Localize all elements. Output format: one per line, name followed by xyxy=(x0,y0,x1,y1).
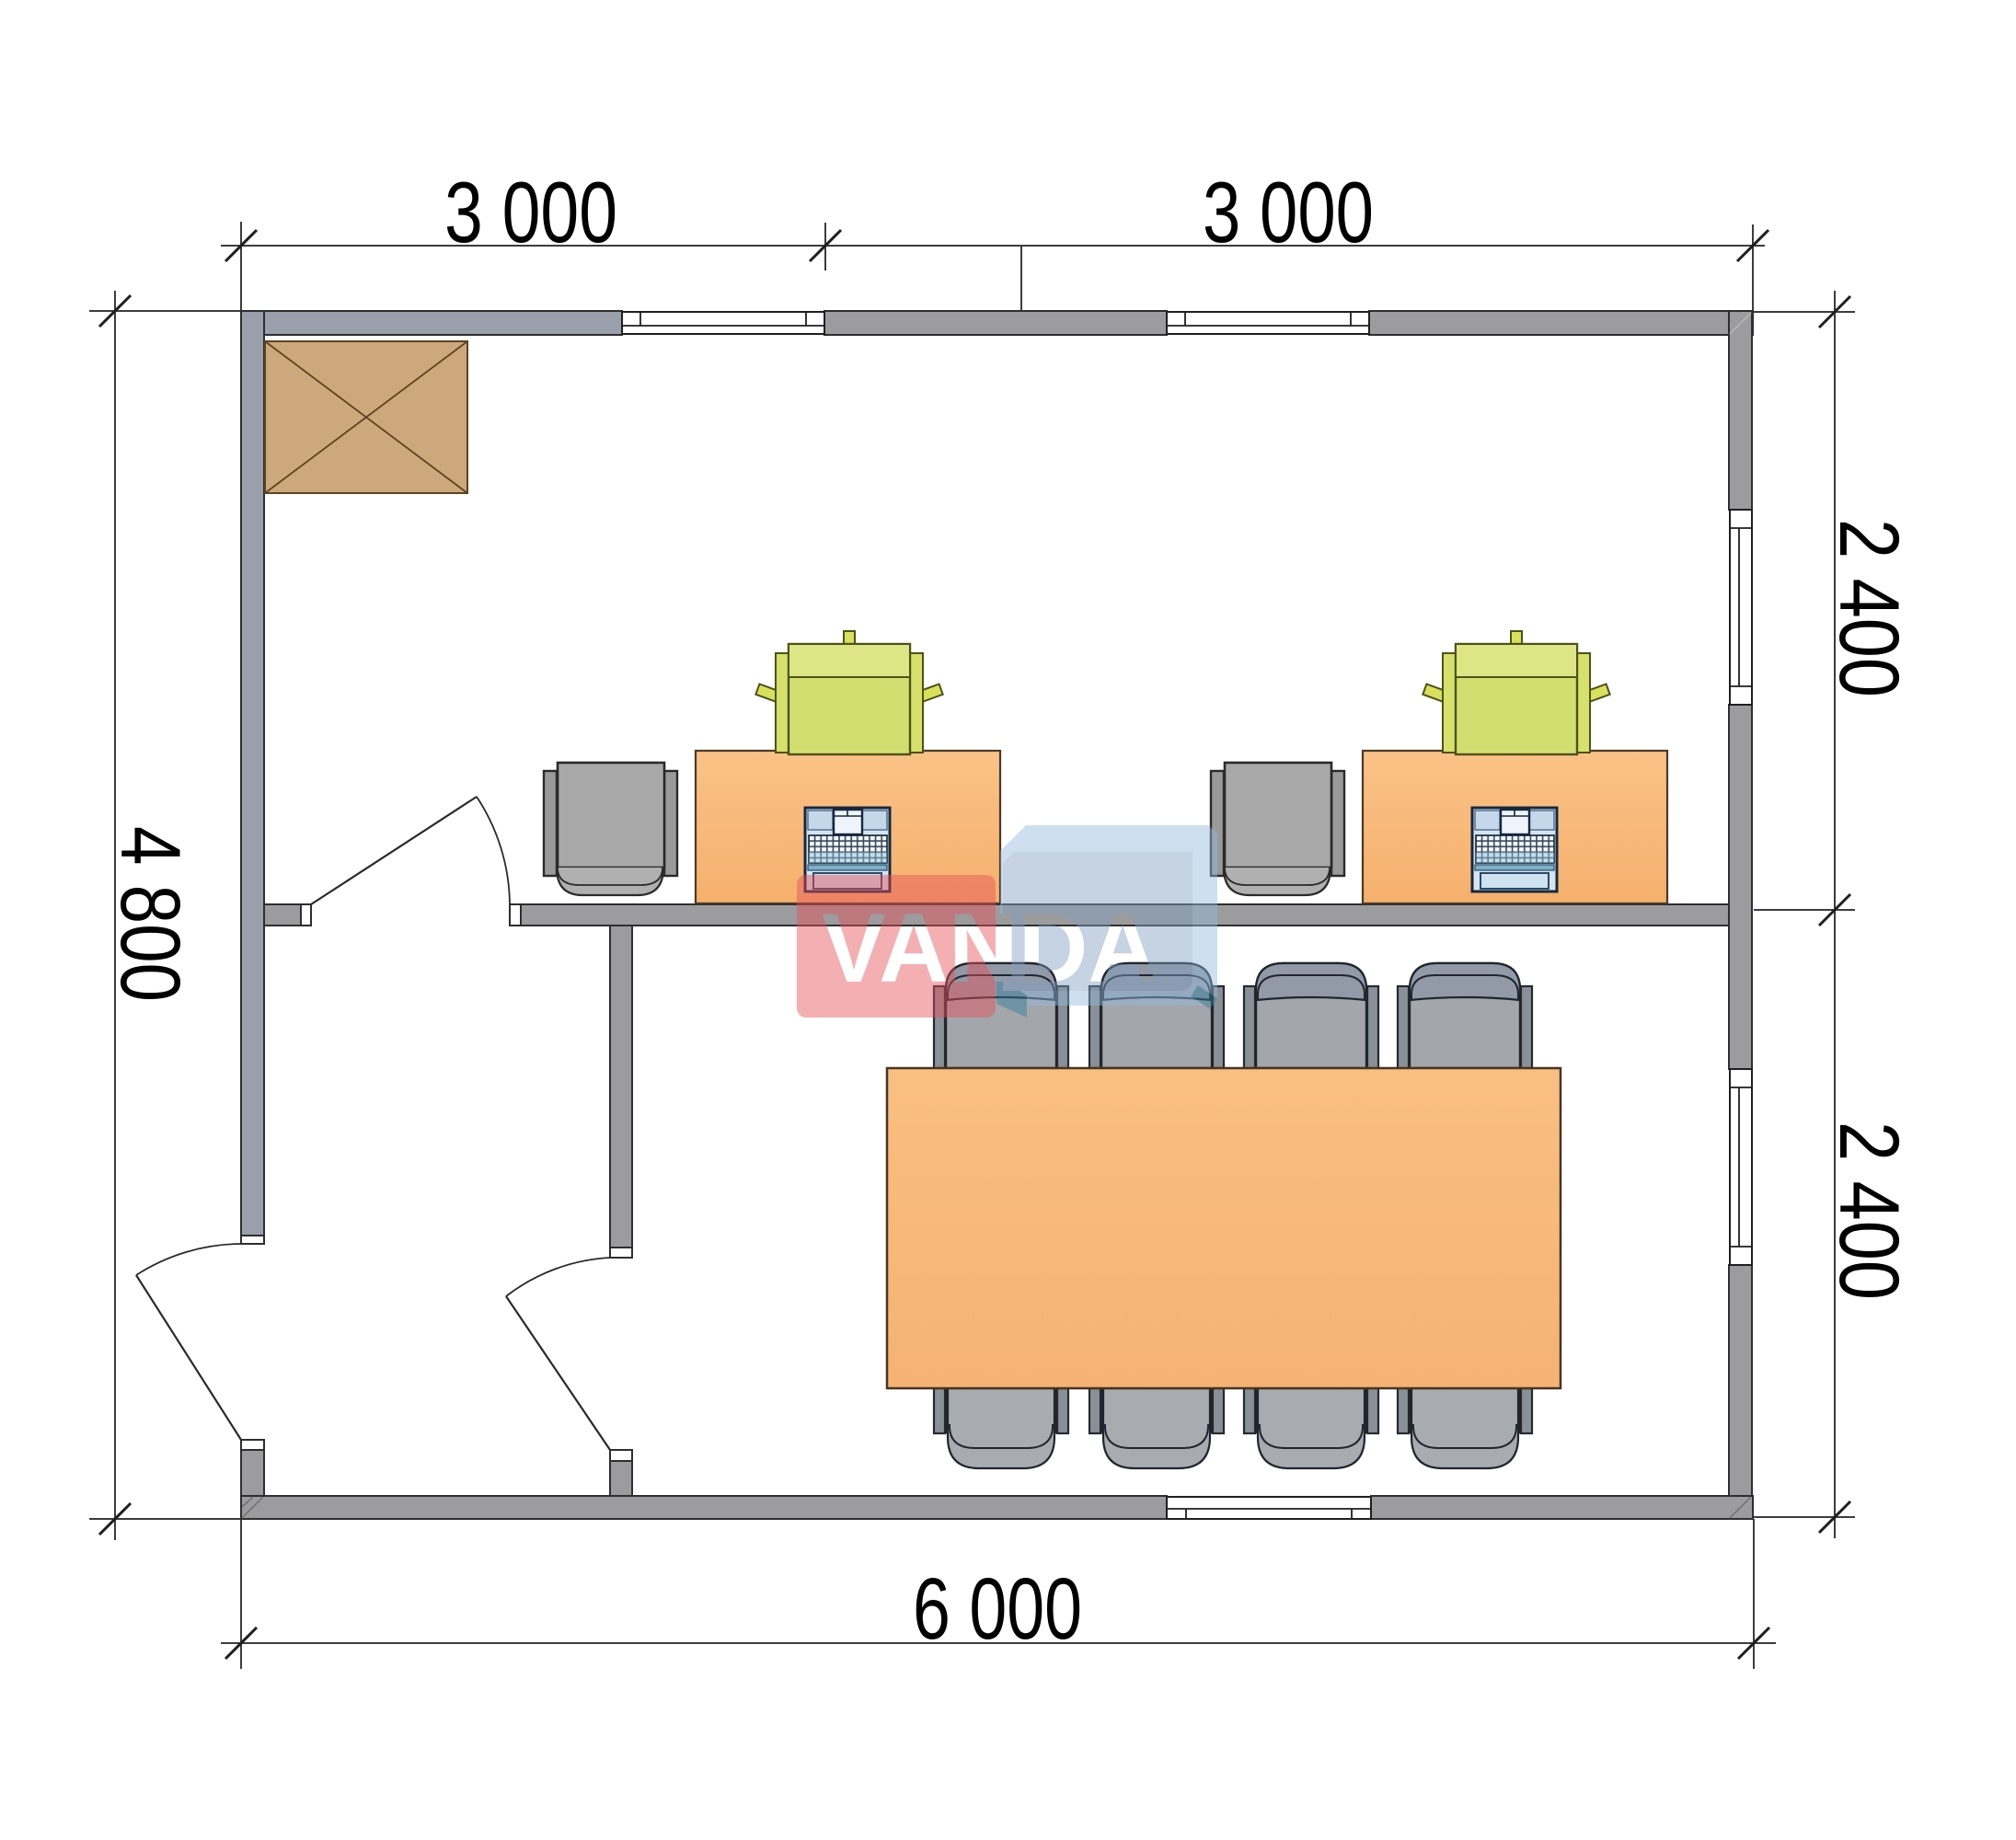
svg-text:4 800: 4 800 xyxy=(103,826,197,1002)
svg-text:3 000: 3 000 xyxy=(444,164,617,260)
svg-text:6 000: 6 000 xyxy=(913,1560,1082,1658)
svg-text:2 400: 2 400 xyxy=(1822,519,1916,697)
svg-text:3 000: 3 000 xyxy=(1203,164,1374,260)
svg-text:2 400: 2 400 xyxy=(1822,1121,1916,1300)
